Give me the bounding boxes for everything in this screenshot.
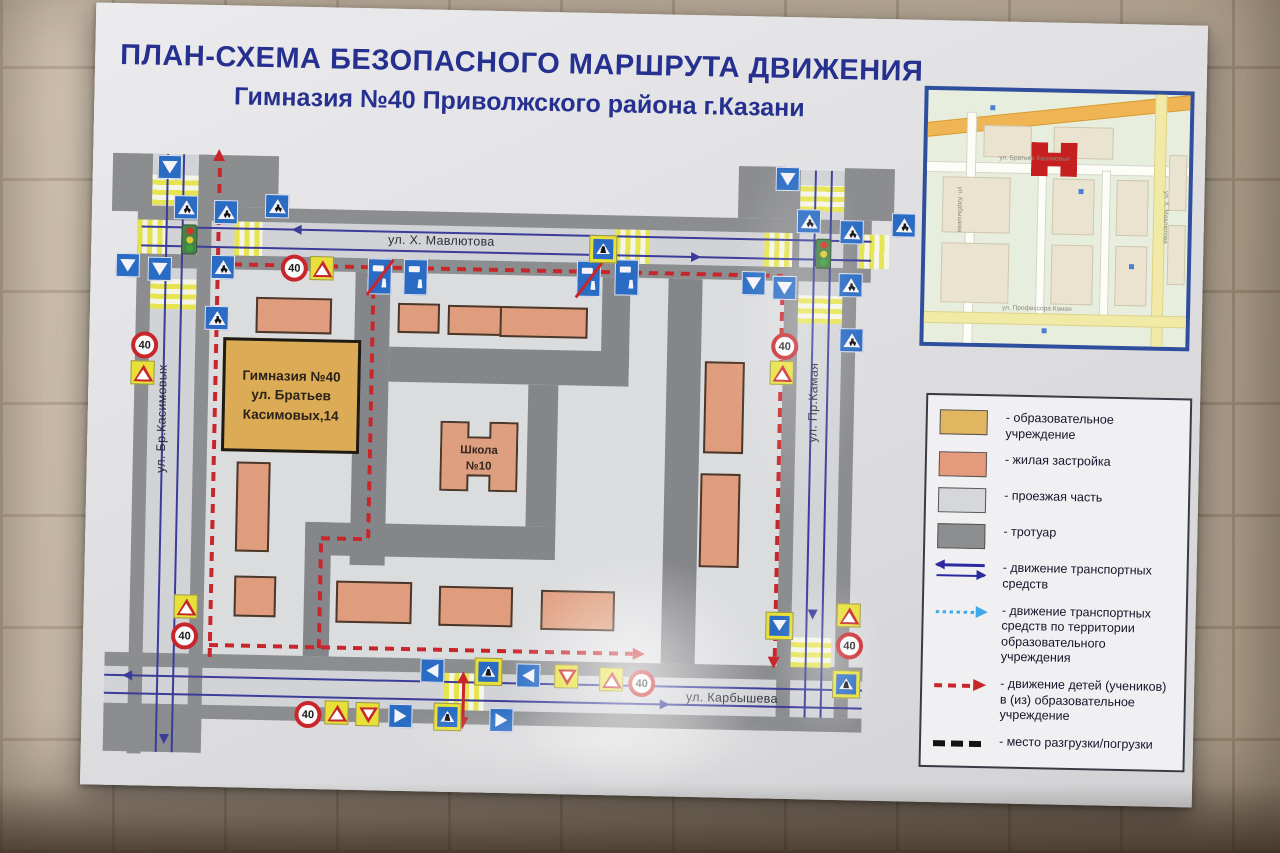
traffic-direction-arrow <box>122 670 132 680</box>
direction-arrow-sign <box>388 704 412 728</box>
direction-arrow-sign <box>516 663 540 687</box>
sidewalk-corner <box>844 168 895 221</box>
legend-row: - движение детей (учеников) в (из) образ… <box>933 675 1174 727</box>
children-warning-sign <box>324 700 348 724</box>
legend-label: - проезжая часть <box>1004 489 1178 508</box>
inset-street-label: ул. Профессора Камая <box>1002 304 1072 312</box>
residential-building <box>233 575 276 617</box>
legend-row: - образовательное учреждение <box>939 409 1180 445</box>
loading-zone-dashes-icon <box>933 733 989 754</box>
traffic-direction-arrow <box>691 252 701 262</box>
residential-building <box>335 581 412 625</box>
pedestrian-crossing-sign <box>214 200 238 224</box>
pedestrian-crossing <box>791 637 832 668</box>
inset-street <box>1100 172 1110 320</box>
gymnasium-label: Гимназия №40 <box>225 365 357 387</box>
direction-arrow-sign <box>489 708 513 732</box>
children-route-arrow <box>457 671 469 683</box>
traffic-light-icon <box>815 239 832 269</box>
sidewalk-corner <box>112 153 141 212</box>
inset-poi-icon <box>1129 264 1134 269</box>
legend-label: - тротуар <box>1003 525 1177 544</box>
residential-building <box>499 306 588 339</box>
children-route-arrow <box>213 149 225 161</box>
pedestrian-crossing-sign <box>433 703 462 732</box>
inset-street-label: ул. Братьев Касимовых <box>999 154 1070 162</box>
traffic-direction-arrow <box>159 734 169 744</box>
legend: - образовательное учреждение - жилая зас… <box>918 393 1192 772</box>
give-way-sign <box>772 276 796 300</box>
children-warning-sign <box>130 360 154 384</box>
children-warning-sign <box>310 256 334 280</box>
pedestrian-crossing-sign <box>892 213 916 237</box>
pedestrian-crossing-sign <box>474 658 503 687</box>
photo-scene: ПЛАН-СХЕМА БЕЗОПАСНОГО МАРШРУТА ДВИЖЕНИЯ… <box>0 0 1280 853</box>
residential-swatch <box>939 451 996 477</box>
legend-row: - проезжая часть <box>938 487 1178 517</box>
territory-traffic-dotted-arrow-icon <box>936 602 992 623</box>
inset-poi-icon <box>1079 189 1084 194</box>
school-10-building: Школа №10 <box>439 421 518 493</box>
pedestrian-crossing <box>798 295 843 324</box>
inset-block <box>1116 180 1149 237</box>
children-route-arrow <box>633 648 645 660</box>
legend-label: - движение транспортных средств <box>1002 561 1177 596</box>
inset-block <box>1050 244 1093 305</box>
inset-block <box>940 242 1009 303</box>
residential-building <box>438 586 513 628</box>
inset-street-label: ул. Х. Мавлютова <box>1161 191 1169 244</box>
sidewalk-swatch <box>937 523 994 549</box>
residential-zone-sign <box>403 259 428 295</box>
internal-driveway <box>305 522 556 560</box>
inset-block <box>1167 225 1186 285</box>
traffic-direction-arrow <box>291 225 301 235</box>
children-route-dashed-arrow-icon <box>934 675 990 696</box>
pedestrian-crossing-sign <box>839 220 863 244</box>
legend-label: - жилая застройка <box>1005 453 1179 472</box>
legend-row: - место разгрузки/погрузки <box>933 733 1173 758</box>
speed-limit-40-sign: 40 <box>294 701 322 729</box>
sidewalk-corner <box>103 703 202 753</box>
legend-row: - тротуар <box>937 523 1177 553</box>
legend-label: - образовательное учреждение <box>1005 411 1180 446</box>
school-10-label: Школа №10 <box>440 443 519 476</box>
gymnasium-label: Касимовых,14 <box>225 404 357 426</box>
pedestrian-crossing-sign <box>832 670 861 699</box>
legend-row: - движение транспортных средств по терри… <box>935 602 1176 670</box>
pedestrian-crossing-sign <box>838 273 862 297</box>
residential-building <box>699 473 741 568</box>
pedestrian-crossing <box>800 185 845 212</box>
roadway-swatch <box>938 487 995 513</box>
poster: ПЛАН-СХЕМА БЕЗОПАСНОГО МАРШРУТА ДВИЖЕНИЯ… <box>80 2 1208 807</box>
legend-label: - движение детей (учеников) в (из) образ… <box>999 677 1174 728</box>
gymnasium-building: Гимназия №40 ул. Братьев Касимовых,14 <box>221 337 361 454</box>
traffic-direction-arrow <box>808 609 818 619</box>
residential-zone-end-sign <box>367 258 392 294</box>
pedestrian-crossing-sign <box>265 194 289 218</box>
pedestrian-crossing-sign <box>174 195 198 219</box>
inset-city-map: ул. Братьев Касимовых ул. Профессора Кам… <box>919 86 1194 352</box>
poster-subtitle: Гимназия №40 Приволжского района г.Казан… <box>119 80 919 126</box>
inset-poi-icon <box>1042 328 1047 333</box>
legend-label: - место разгрузки/погрузки <box>999 734 1173 753</box>
children-warning-sign <box>173 594 197 618</box>
inset-block <box>983 125 1032 158</box>
residential-building <box>703 361 745 454</box>
inset-block <box>1052 179 1095 236</box>
gymnasium-label: ул. Братьев <box>225 384 357 406</box>
residential-building <box>235 461 271 552</box>
schematic-map: Гимназия №40 ул. Братьев Касимовых,14 Шк… <box>96 2 1208 25</box>
children-warning-sign <box>836 603 860 627</box>
legend-label: - движение транспортных средств по терри… <box>1001 603 1176 669</box>
give-way-sign <box>147 257 171 281</box>
give-way-sign <box>554 664 578 688</box>
residential-building <box>397 303 440 334</box>
poster-header: ПЛАН-СХЕМА БЕЗОПАСНОГО МАРШРУТА ДВИЖЕНИЯ… <box>119 39 920 126</box>
pedestrian-crossing-sign <box>589 235 618 264</box>
inset-block <box>1114 246 1147 307</box>
give-way-sign <box>355 702 379 726</box>
legend-row: - движение транспортных средств <box>936 559 1177 595</box>
residential-zone-sign <box>614 259 639 295</box>
pedestrian-crossing-sign <box>839 328 863 352</box>
give-way-sign <box>158 155 182 179</box>
internal-driveway <box>388 347 629 387</box>
residential-building <box>255 297 332 335</box>
inset-street-label: ул. Карбышева <box>956 186 964 232</box>
education-swatch <box>939 409 996 435</box>
legend-row: - жилая застройка <box>939 451 1179 481</box>
give-way-sign <box>776 167 800 191</box>
residential-building <box>540 590 615 632</box>
children-warning-sign <box>599 667 623 691</box>
inset-block <box>942 176 1011 233</box>
poster-title: ПЛАН-СХЕМА БЕЗОПАСНОГО МАРШРУТА ДВИЖЕНИЯ <box>120 39 921 89</box>
residential-zone-end-sign <box>576 261 601 297</box>
children-warning-sign <box>769 361 793 385</box>
vehicle-traffic-arrows-icon <box>936 559 992 581</box>
traffic-light-icon <box>181 224 198 254</box>
give-way-sign <box>741 271 765 295</box>
inset-street <box>1036 170 1046 318</box>
direction-arrow-sign <box>420 658 444 682</box>
give-way-sign <box>116 253 140 277</box>
pedestrian-crossing <box>150 279 197 310</box>
pedestrian-crossing-sign <box>211 255 235 279</box>
inset-block <box>1168 155 1187 211</box>
children-route-arrow <box>768 657 780 669</box>
speed-limit-40-sign: 40 <box>836 632 864 660</box>
internal-driveway <box>525 385 558 528</box>
pedestrian-crossing-sign <box>797 209 821 233</box>
give-way-sign <box>765 612 794 641</box>
pedestrian-crossing-sign <box>204 306 228 330</box>
inset-poi-icon <box>990 105 995 110</box>
